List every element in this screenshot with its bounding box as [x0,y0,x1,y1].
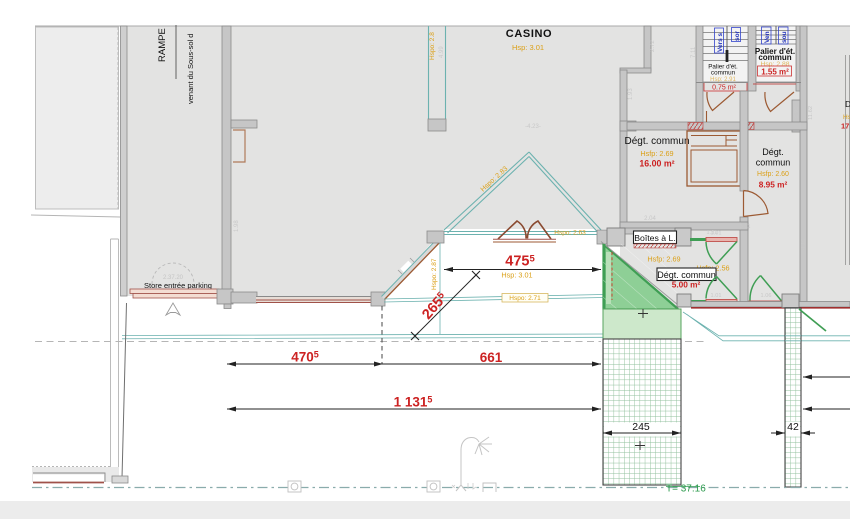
svg-text:4.99: 4.99 [439,46,445,58]
svg-text:661: 661 [480,350,503,365]
svg-text:Hspo: 2.8: Hspo: 2.8 [429,32,436,60]
svg-text:Dégt. commun: Dégt. commun [657,270,716,280]
svg-text:1.55 m²: 1.55 m² [761,68,789,77]
svg-text:sor: sor [734,30,741,41]
svg-text:2.72: 2.72 [650,40,656,52]
svg-text:11.62: 11.62 [808,106,814,120]
svg-text:16.00 m²: 16.00 m² [639,159,674,169]
svg-text:1.06: 1.06 [761,293,772,299]
svg-text:venant du Sous-sol d: venant du Sous-sol d [186,34,195,104]
svg-text:T= 37.16: T= 37.16 [666,484,706,495]
svg-text:Ven: Ven [764,31,771,43]
svg-text:17: 17 [841,122,849,131]
svg-text:Hspo: 2.63: Hspo: 2.63 [554,230,586,237]
svg-text:commun: commun [711,70,736,77]
svg-text:Boîtes à L.: Boîtes à L. [634,233,676,243]
svg-text:1.01: 1.01 [711,231,722,237]
svg-text:Hsp: 3.01: Hsp: 3.01 [512,43,544,52]
svg-text:CASINO: CASINO [506,28,552,40]
svg-text:Dégt.: Dégt. [762,147,784,157]
svg-text:Hspo: 2.87: Hspo: 2.87 [431,258,438,290]
svg-text:Hsfp: 2.69: Hsfp: 2.69 [640,149,673,158]
svg-text:0.75 m²: 0.75 m² [712,84,736,91]
svg-text:245: 245 [632,421,650,433]
svg-text:Hs: Hs [843,114,850,121]
svg-text:4.10: 4.10 [801,239,807,250]
svg-text:2.04: 2.04 [644,216,656,222]
svg-text:1.01: 1.01 [711,293,722,299]
svg-text:-4.23-: -4.23- [525,124,541,130]
svg-text:RAMPE: RAMPE [157,28,168,62]
svg-text:8.95 m²: 8.95 m² [759,180,788,190]
svg-text:Hsfp: 2.60: Hsfp: 2.60 [757,171,789,178]
svg-text:7.11: 7.11 [691,46,697,58]
svg-text:0.90: 0.90 [794,107,800,118]
svg-text:Hspo: 2.71: Hspo: 2.71 [509,295,541,302]
svg-text:1.98: 1.98 [234,220,240,232]
svg-text:Hsp: 3.01: Hsp: 3.01 [501,271,532,280]
svg-text:1.93: 1.93 [628,88,634,100]
svg-text:Dégt. commun: Dégt. commun [624,136,689,147]
svg-text:D: D [845,99,850,109]
svg-text:3.11: 3.11 [740,224,751,230]
svg-text:1 1315: 1 1315 [394,395,433,410]
svg-text:commun: commun [756,158,791,168]
svg-text:sou: sou [781,31,788,43]
svg-text:42: 42 [787,421,799,433]
svg-text:Hsfp: 2.69: Hsfp: 2.69 [647,255,680,264]
svg-text:Vers s: Vers s [717,32,724,52]
svg-text:5.00 m²: 5.00 m² [672,280,701,290]
